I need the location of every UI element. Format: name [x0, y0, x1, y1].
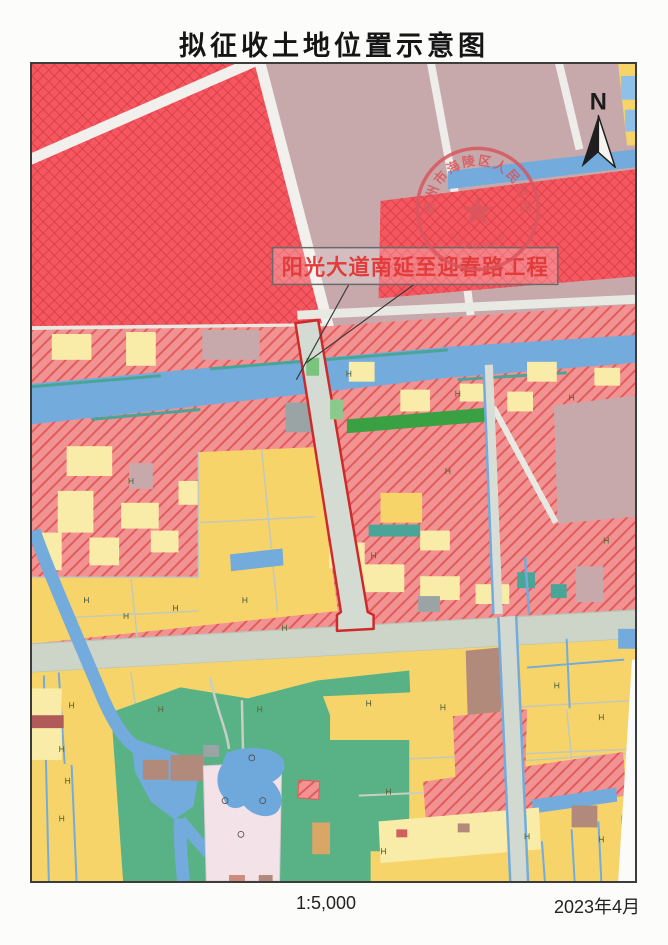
date-label: 2023年4月 [554, 893, 640, 919]
scale-label: 1:5,000 [296, 893, 356, 914]
project-label: 阳光大道南延至迎春路工程 [282, 254, 549, 279]
water-patch [625, 110, 635, 132]
map-frame: 阳光大道南延至迎春路工程 泰州市海陵区人民政府 征收土地专用章 N [30, 62, 637, 883]
page-title: 拟征收土地位置示意图 [0, 24, 668, 63]
government-stamp: 泰州市海陵区人民政府 征收土地专用章 [417, 148, 538, 269]
water-patch [621, 76, 635, 100]
land-use-map: 阳光大道南延至迎春路工程 泰州市海陵区人民政府 征收土地专用章 N [32, 64, 635, 881]
built-block [554, 396, 635, 524]
scanned-map-page: 拟征收土地位置示意图 [0, 0, 668, 945]
north-label: N [590, 89, 607, 116]
